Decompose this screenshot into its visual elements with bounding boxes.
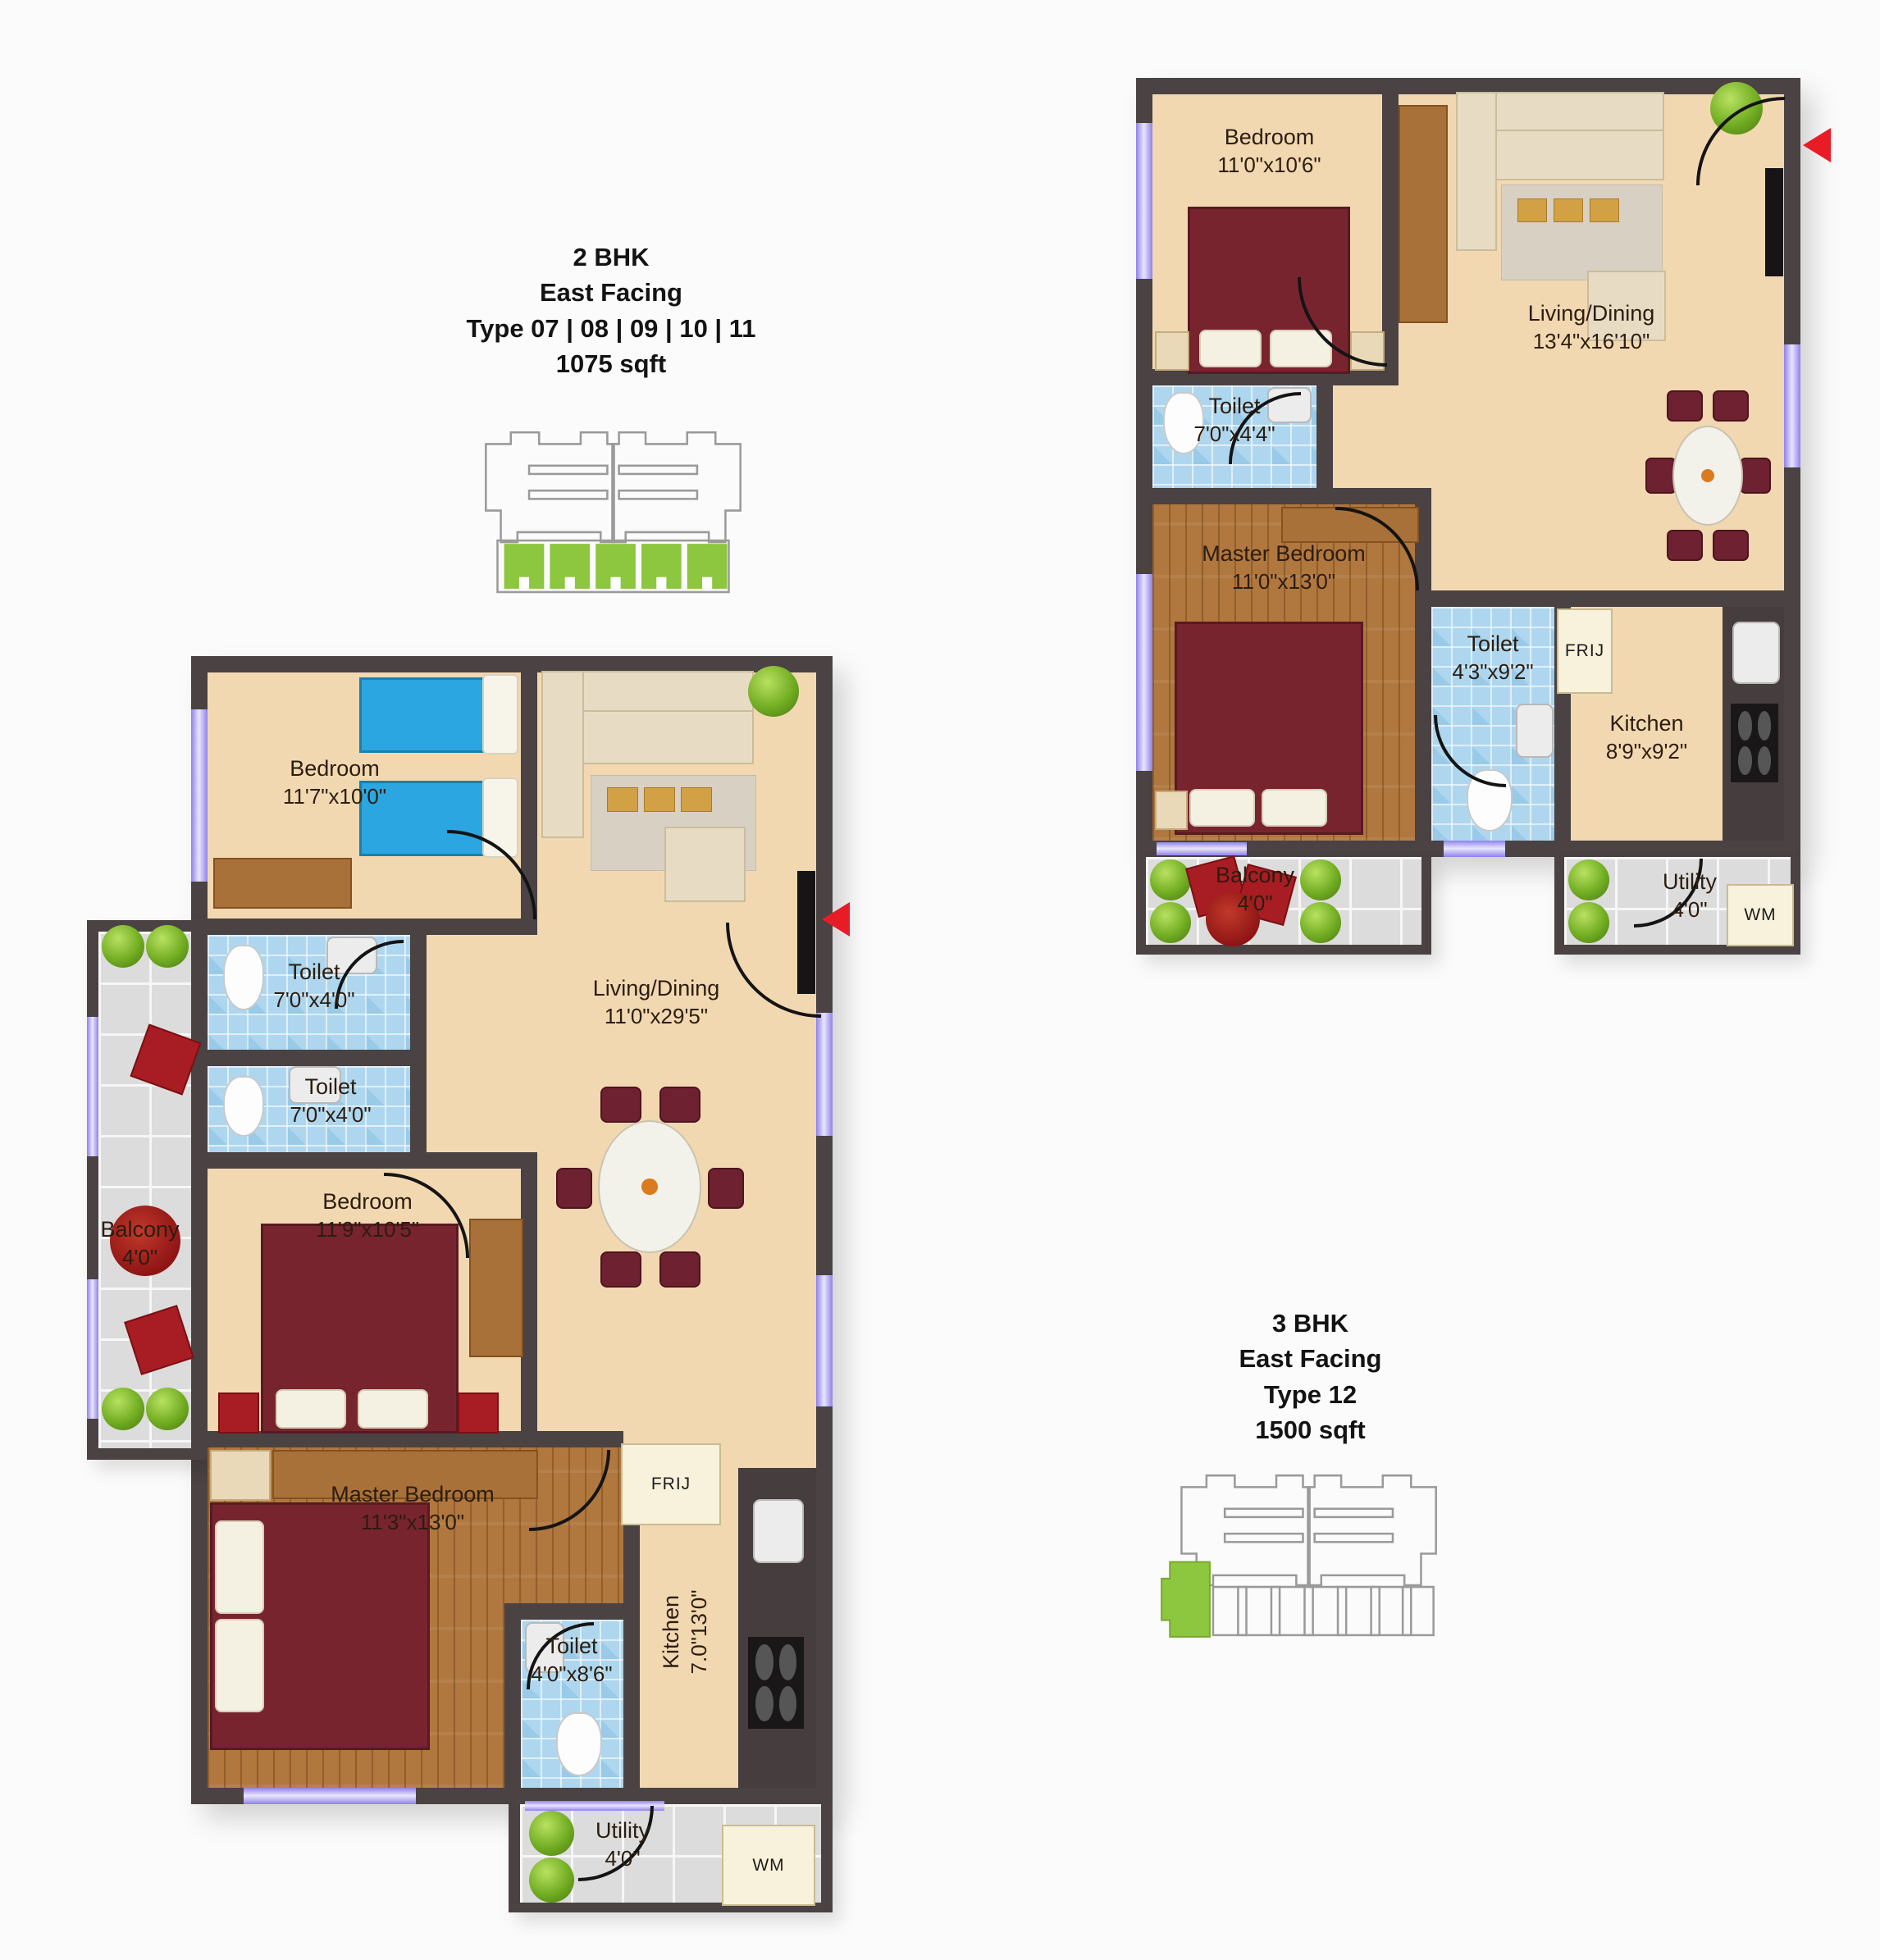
- plant-icon: [146, 1388, 189, 1430]
- pillow: [1199, 330, 1262, 367]
- wardrobe: [1399, 105, 1448, 323]
- room-name: Master Bedroom: [249, 1480, 577, 1509]
- plant-icon: [146, 925, 189, 968]
- pillow: [358, 1389, 428, 1429]
- pillow: [215, 1619, 264, 1712]
- room-name: Balcony: [1165, 861, 1345, 890]
- cushion: [1554, 198, 1583, 222]
- wall: [521, 1152, 537, 1447]
- bedside-table: [218, 1393, 259, 1434]
- window: [1157, 842, 1247, 855]
- plan-title-3bhk: 3 BHK East Facing Type 12 1500 sqft: [1148, 1306, 1472, 1448]
- room-dims: 11'0"x13'0": [1152, 568, 1415, 596]
- room-label-bedroom: Bedroom 11'0"x10'6": [1152, 123, 1386, 180]
- room-label-toilet2: Toilet 4'3"x9'2": [1431, 630, 1554, 686]
- room-name: Utility: [1620, 868, 1759, 896]
- pillow: [1189, 789, 1255, 827]
- window: [1136, 574, 1152, 771]
- title-area: 1075 sqft: [447, 346, 775, 381]
- dining-set: [1645, 390, 1772, 562]
- single-bed: [359, 677, 487, 753]
- room-name: Bedroom: [1152, 123, 1386, 152]
- wall: [1431, 590, 1554, 607]
- window: [244, 1788, 416, 1804]
- room-label-balcony: Balcony 4'0": [1165, 861, 1345, 918]
- pillow: [276, 1389, 346, 1429]
- room-dims: 4'0": [89, 1244, 191, 1272]
- window: [1136, 123, 1152, 279]
- burner: [755, 1644, 773, 1680]
- burner: [779, 1686, 797, 1722]
- room-dims: 4'0"x8'6": [514, 1661, 629, 1689]
- plant-icon: [1568, 859, 1609, 900]
- room-label-living-dining: Living/Dining 13'4"x16'10": [1444, 299, 1739, 356]
- room-name: Toilet: [232, 1073, 429, 1101]
- room-name: Toilet: [1152, 392, 1316, 421]
- wall: [191, 1431, 623, 1447]
- room-dims: 13'4"x16'10": [1444, 328, 1739, 356]
- room-label-utility: Utility 4'0": [520, 1816, 725, 1873]
- wall: [410, 918, 427, 1169]
- burner: [1738, 746, 1752, 776]
- sofa-chaise: [541, 671, 584, 838]
- window: [816, 1275, 833, 1406]
- sofa-chaise: [1456, 92, 1497, 251]
- room-label-kitchen: Kitchen 7.0"13'0": [632, 1525, 738, 1739]
- window: [816, 1013, 833, 1136]
- title-facing: East Facing: [447, 275, 775, 310]
- room-name: Living/Dining: [509, 974, 804, 1003]
- washing-machine-box: WM: [722, 1825, 815, 1906]
- title-area: 1500 sqft: [1148, 1412, 1472, 1447]
- room-label-toilet2: Toilet 7'0"x4'0": [232, 1073, 429, 1129]
- room-dims: 7'0"x4'0": [232, 1101, 429, 1129]
- wall: [191, 918, 537, 935]
- room-dims: 7'0"x4'0": [216, 987, 413, 1014]
- room-label-master-bedroom: Master Bedroom 11'0"x13'0": [1152, 540, 1415, 596]
- room-dims: 8'9"x9'2": [1567, 738, 1727, 766]
- pillow: [1262, 789, 1327, 827]
- room-dims: 7.0"13'0": [686, 1525, 714, 1739]
- room-name: Utility: [520, 1816, 725, 1845]
- plant-icon: [102, 925, 144, 968]
- cushion: [644, 787, 675, 812]
- room-label-living-dining: Living/Dining 11'0"x29'5": [509, 974, 804, 1031]
- cushion: [607, 787, 638, 812]
- stove: [1731, 704, 1778, 782]
- cushion: [1517, 198, 1547, 222]
- room-name: Master Bedroom: [1152, 540, 1415, 568]
- title-facing: East Facing: [1148, 1341, 1472, 1376]
- kitchen-sink: [1732, 622, 1780, 684]
- fridge-label: FRIJ: [651, 1475, 691, 1494]
- room-living-passage: [1333, 385, 1399, 488]
- fridge-box: FRIJ: [1557, 609, 1613, 694]
- burner: [779, 1644, 797, 1680]
- room-dims: 11'7"x10'0": [208, 783, 462, 811]
- kitchen-sink: [753, 1499, 804, 1563]
- sink: [1516, 704, 1554, 758]
- window: [87, 1017, 98, 1156]
- room-label-bedroom1: Bedroom 11'7"x10'0": [208, 754, 462, 811]
- title-bhk: 2 BHK: [447, 239, 775, 275]
- room-dims: 4'0": [1165, 890, 1345, 918]
- cushion: [681, 787, 712, 812]
- room-label-toilet1: Toilet 7'0"x4'4": [1152, 392, 1316, 449]
- room-label-toilet1: Toilet 7'0"x4'0": [216, 958, 413, 1014]
- title-bhk: 3 BHK: [1148, 1306, 1472, 1341]
- bed-headboard: [482, 674, 518, 754]
- stove: [748, 1637, 804, 1729]
- toilet-fixture: [556, 1712, 602, 1776]
- wall: [191, 1050, 410, 1066]
- room-name: Living/Dining: [1444, 299, 1739, 328]
- plant-icon: [1568, 902, 1609, 943]
- room-dims: 4'3"x9'2": [1431, 659, 1554, 686]
- armchair: [664, 827, 746, 902]
- wall: [191, 1152, 537, 1169]
- plan-title-2bhk: 2 BHK East Facing Type 07 | 08 | 09 | 10…: [447, 239, 775, 382]
- dining-set: [554, 1083, 746, 1292]
- entry-arrow-icon: [1803, 128, 1831, 162]
- room-dims: 7'0"x4'4": [1152, 421, 1316, 449]
- room-label-balcony: Balcony 4'0": [89, 1215, 191, 1272]
- wall: [1415, 504, 1431, 841]
- keyplan-diagram-3bhk: [1155, 1453, 1454, 1654]
- cushion: [1590, 198, 1619, 222]
- room-name: Kitchen: [1567, 709, 1727, 738]
- bedside-table: [458, 1393, 499, 1434]
- burner: [1758, 711, 1772, 741]
- washing-machine-label: WM: [752, 1856, 784, 1876]
- room-dims: 11'0"x10'6": [1152, 152, 1386, 180]
- room-dims: 11'3"x13'0": [249, 1509, 577, 1537]
- window: [1784, 344, 1800, 467]
- fridge-box: FRIJ: [621, 1443, 721, 1525]
- burner: [1758, 746, 1772, 776]
- wall: [504, 1603, 623, 1620]
- plant-icon: [102, 1388, 144, 1430]
- room-label-bedroom2: Bedroom 11'9"x10'5": [232, 1187, 503, 1244]
- title-type: Type 12: [1148, 1377, 1472, 1412]
- room-name: Kitchen: [657, 1525, 686, 1739]
- room-dims: 4'0": [1620, 896, 1759, 924]
- window: [191, 709, 208, 882]
- room-name: Toilet: [216, 958, 413, 987]
- keyplan-diagram-2bhk: [468, 410, 759, 603]
- bedside-table: [1155, 791, 1188, 830]
- room-label-toilet3: Toilet 4'0"x8'6": [514, 1632, 629, 1689]
- plant-icon: [748, 666, 799, 717]
- room-name: Toilet: [1431, 630, 1554, 659]
- room-dims: 11'9"x10'5": [232, 1216, 503, 1244]
- title-type: Type 07 | 08 | 09 | 10 | 11: [447, 311, 775, 346]
- room-label-kitchen: Kitchen 8'9"x9'2": [1567, 709, 1727, 766]
- burner: [755, 1686, 773, 1722]
- burner: [1738, 711, 1752, 741]
- wall: [1136, 488, 1431, 504]
- window: [87, 1279, 98, 1419]
- room-label-master-bedroom: Master Bedroom 11'3"x13'0": [249, 1480, 577, 1537]
- room-name: Balcony: [89, 1215, 191, 1244]
- wall: [1316, 369, 1333, 504]
- room-dims: 4'0": [520, 1845, 725, 1873]
- fridge-label: FRIJ: [1565, 641, 1604, 661]
- room-name: Bedroom: [232, 1187, 503, 1216]
- wall: [1571, 590, 1784, 607]
- room-name: Bedroom: [208, 754, 462, 783]
- dresser: [213, 858, 352, 909]
- room-label-utility: Utility 4'0": [1620, 868, 1759, 924]
- window: [1444, 841, 1505, 857]
- room-dims: 11'0"x29'5": [509, 1003, 804, 1031]
- bedside-table: [1155, 331, 1189, 371]
- room-name: Toilet: [514, 1632, 629, 1661]
- entry-arrow-icon: [822, 902, 850, 937]
